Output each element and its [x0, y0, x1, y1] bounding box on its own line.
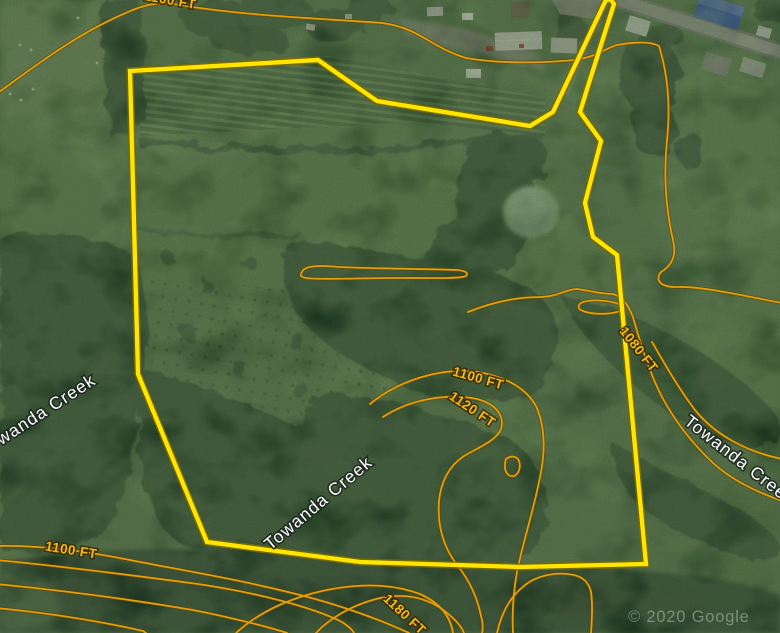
satellite-map[interactable]: 1100 FT1100 FT1120 FT1080 FT1180 FT1100 …: [0, 0, 780, 633]
map-viewport[interactable]: 1100 FT1100 FT1120 FT1080 FT1180 FT1100 …: [0, 0, 780, 633]
google-watermark: © 2020 Google: [628, 608, 750, 626]
texture-grain: [0, 0, 780, 633]
